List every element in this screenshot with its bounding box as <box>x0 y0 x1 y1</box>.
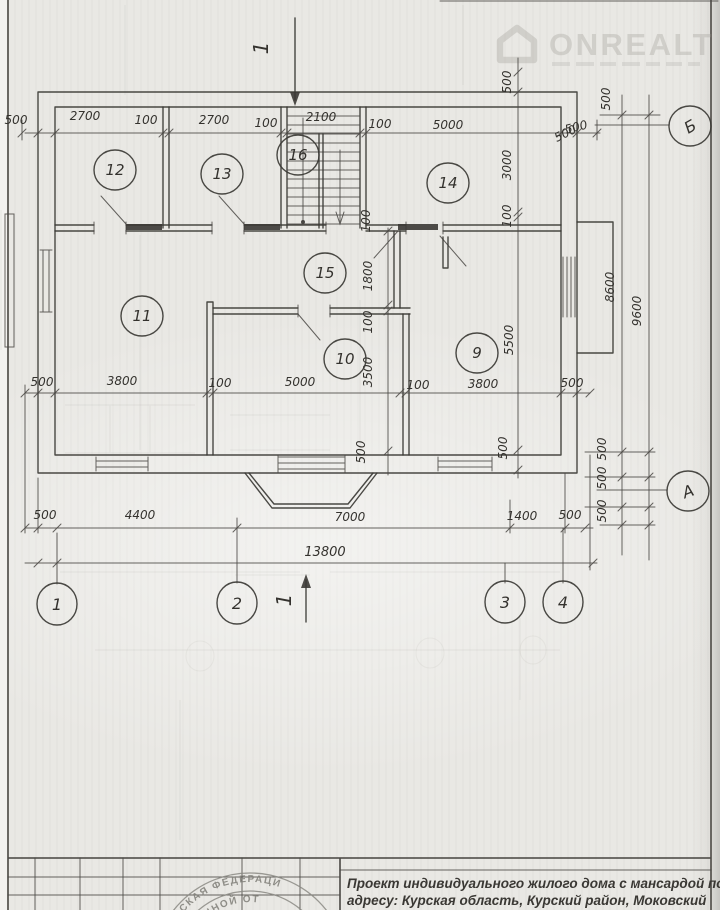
door-leaf <box>126 224 162 230</box>
axis-marker-b: Б <box>681 115 700 137</box>
bottom-window-left <box>96 457 148 471</box>
dim-label: 8600 <box>603 271 617 302</box>
door-swings <box>101 196 466 340</box>
dim-label: 7000 <box>335 510 366 524</box>
dim-label: 500 <box>559 508 582 522</box>
dim-label: 3500 <box>361 356 375 387</box>
watermark: ONREALT <box>500 27 714 64</box>
dim-label: 5000 <box>285 375 316 389</box>
section-mark-bottom: 1 <box>272 574 311 622</box>
section-label-bottom: 1 <box>272 594 296 607</box>
dim-label: 100 <box>255 116 278 130</box>
dim-label: 500 <box>599 87 613 110</box>
dim-label: 2700 <box>70 109 101 123</box>
dim-label: 500 <box>354 440 368 463</box>
dim-label: 500 <box>496 436 510 459</box>
title-block-line1: Проект индивидуального жилого дома с ман… <box>347 876 720 891</box>
dim-label: 9600 <box>630 295 644 326</box>
dim-label: 1800 <box>361 260 375 291</box>
title-block: Проект индивидуального жилого дома с ман… <box>8 858 720 910</box>
dim-label: 500 <box>595 466 609 489</box>
room-number: 15 <box>315 264 334 282</box>
dim-label: 500 <box>34 508 57 522</box>
room-number: 9 <box>472 344 482 362</box>
overall-dim-label: 13800 <box>304 545 345 560</box>
section-mark-top: 1 <box>249 18 300 106</box>
section-label-top: 1 <box>249 42 273 55</box>
bay-window-glazing <box>278 455 345 473</box>
dim-label: 500 <box>595 437 609 460</box>
axis-marker-3: 3 <box>500 593 510 612</box>
dimension-labels: 500 2700 100 2700 100 2100 100 5000 500 … <box>5 70 644 560</box>
axis-marker-4: 4 <box>558 593 568 612</box>
stair-stringer <box>319 134 323 228</box>
dim-label: 100 <box>209 376 232 390</box>
hall-wall <box>213 308 410 314</box>
room-number: 13 <box>212 165 231 183</box>
dim-label: 3800 <box>107 374 138 388</box>
bottom-window-right <box>438 457 492 471</box>
dim-label: 3800 <box>468 377 499 391</box>
partition-15-9 <box>394 231 400 308</box>
title-block-line2: адресу: Курская область, Курский район, … <box>347 893 707 908</box>
axis-marker-a: А <box>679 481 697 503</box>
dim-label: 1400 <box>507 509 538 523</box>
openings <box>5 214 613 508</box>
hall-door-jambs <box>298 305 330 317</box>
room-number: 10 <box>335 350 354 368</box>
room-number: 16 <box>288 146 307 164</box>
inner-wall-face <box>55 107 561 455</box>
watermark-brand: ONREALT <box>549 27 714 62</box>
dim-label: 500 <box>595 499 609 522</box>
dim-label: 2700 <box>199 113 230 127</box>
dim-label: 4400 <box>125 508 156 522</box>
dim-label: 500 <box>31 375 54 389</box>
dim-label: 2100 <box>306 110 337 124</box>
dim-label: 5000 <box>433 118 464 132</box>
dim-label: 500 <box>5 113 28 127</box>
dim-label: 100 <box>135 113 158 127</box>
room-number: 14 <box>438 174 457 192</box>
dim-label: 5500 <box>502 324 516 355</box>
dim-label: 500 <box>500 70 514 93</box>
door-leaf <box>398 224 438 230</box>
dim-label: 3000 <box>500 149 514 180</box>
room-number: 12 <box>105 161 124 179</box>
left-window-sill <box>5 214 14 347</box>
house-icon <box>500 28 534 60</box>
axis-marker-1: 1 <box>52 595 62 614</box>
dim-label: 100 <box>369 117 392 131</box>
axis-marker-2: 2 <box>232 594 242 613</box>
partition-12-13 <box>163 107 169 228</box>
dim-label: 100 <box>500 204 514 227</box>
dim-label: 100 <box>407 378 430 392</box>
door-leaf <box>244 224 280 230</box>
room-number: 11 <box>132 307 151 325</box>
dim-label: 100 <box>359 209 373 232</box>
room-numbers: 12 13 16 14 11 15 10 9 <box>94 135 498 379</box>
balcony-door-window <box>563 257 575 317</box>
dim-label: 100 <box>361 310 375 333</box>
scanned-floorplan-sheet: ONREALT 1 <box>0 0 720 910</box>
left-window <box>40 250 52 312</box>
round-stamp: ССИЙСКАЯ ФЕДЕРАЦИ НИЧЕННОЙ ОТ <box>153 873 347 910</box>
dim-label: 500 <box>561 376 584 390</box>
bay-window <box>245 473 377 508</box>
floorplan-drawing: ONREALT 1 <box>0 0 720 910</box>
